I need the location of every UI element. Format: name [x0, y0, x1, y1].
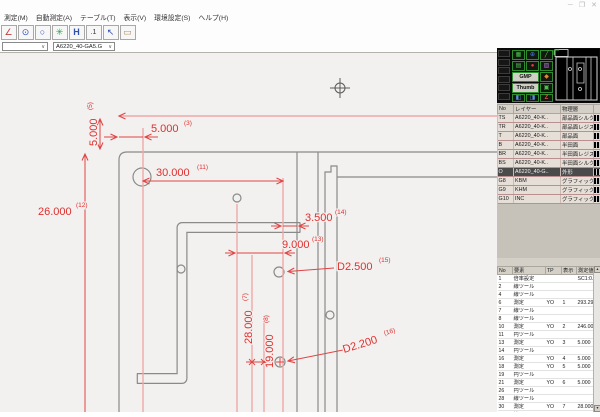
- measurement-row[interactable]: 10 測定 YO 2 246.000: [498, 323, 600, 331]
- menu-item[interactable]: 測定(M): [4, 12, 28, 22]
- svg-text:(16): (16): [383, 327, 396, 337]
- menu-bar: 測定(M)自動測定(A)テーブル(T)表示(V)環境設定(S)ヘルプ(H): [0, 12, 600, 22]
- part-geometry: [119, 152, 497, 412]
- layer-row[interactable]: TR A6220_40-K.. 部品面レジスト: [498, 123, 600, 132]
- measurement-row[interactable]: 8 線ツール: [498, 315, 600, 323]
- measurement-row[interactable]: 26 円ツール: [498, 387, 600, 395]
- measurement-row[interactable]: 11 円ツール: [498, 331, 600, 339]
- svg-text:(7): (7): [242, 293, 249, 301]
- layer-color-swatch[interactable]: [594, 115, 600, 120]
- measurement-row[interactable]: 14 円ツール: [498, 347, 600, 355]
- measurement-row[interactable]: 16 測定 YO 4 5.000: [498, 355, 600, 363]
- dim-5-3: 5.000: [151, 123, 179, 135]
- meas-header-row: No 要素 TP 表示 測定値: [498, 267, 600, 275]
- layer-select[interactable]: ∨: [2, 42, 48, 51]
- measurement-row[interactable]: 30 測定 YO 7 28.000: [498, 403, 600, 411]
- layer-row[interactable]: G10 INC グラフィック: [498, 195, 600, 204]
- dimension-labels: 26.000 (12) 5.000 (3) 30.000 (11) 5.000 …: [38, 102, 398, 368]
- stack-button[interactable]: [498, 76, 510, 83]
- measurement-row[interactable]: 18 測定 YO 5 5.000: [498, 363, 600, 371]
- stack-button[interactable]: [498, 93, 510, 100]
- dim-19: 19.000 (8): [263, 315, 276, 368]
- layer-row[interactable]: B A6220_40-K.. 半田面: [498, 141, 600, 150]
- svg-text:D2.200: D2.200: [341, 334, 378, 356]
- palette-icon[interactable]: ▨: [540, 61, 553, 71]
- dimension-lines: [85, 119, 343, 412]
- stack-button[interactable]: [498, 67, 510, 74]
- gear-icon[interactable]: ✳: [52, 25, 68, 40]
- extension-lines: [119, 116, 497, 412]
- measurement-row[interactable]: 1 倍率設定 SC1:0.75: [498, 275, 600, 283]
- draw-icon[interactable]: ╱: [540, 50, 553, 60]
- grid-icon[interactable]: ▦: [512, 50, 525, 60]
- measurement-table: No 要素 TP 表示 測定値 1 倍率設定 SC1:0.75: [497, 266, 600, 412]
- measurement-row[interactable]: 2 線ツール: [498, 283, 600, 291]
- dim-26: 26.000: [38, 206, 72, 218]
- stack-buttons: [498, 50, 510, 102]
- dim-d25: D2.500: [337, 261, 372, 273]
- svg-text:(14): (14): [335, 209, 347, 216]
- layer-row[interactable]: T A6220_40-K.. 部品面: [498, 132, 600, 141]
- file-select[interactable]: A6220_40-GA5.G ∨: [53, 42, 115, 51]
- circle-measure-icon[interactable]: ○: [35, 25, 51, 40]
- menu-item[interactable]: 環境設定(S): [154, 12, 190, 22]
- gmp-button[interactable]: GMP: [512, 72, 539, 82]
- drawing-canvas[interactable]: 26.000 (12) 5.000 (3) 30.000 (11) 5.000 …: [0, 52, 497, 412]
- svg-text:(13): (13): [312, 236, 324, 243]
- camera-icon[interactable]: ▣: [540, 83, 553, 93]
- svg-text:(8): (8): [263, 315, 270, 323]
- scroll-down-icon[interactable]: ▼: [594, 405, 600, 412]
- number-label-icon[interactable]: .1: [86, 25, 102, 40]
- layer-color-swatch[interactable]: [594, 142, 600, 147]
- report-window-icon[interactable]: ▭: [120, 25, 136, 40]
- select-cursor-icon[interactable]: ↖: [103, 25, 119, 40]
- down-icon[interactable]: ◨: [526, 94, 539, 102]
- drawing-svg: 26.000 (12) 5.000 (3) 30.000 (11) 5.000 …: [0, 52, 497, 412]
- rail-bar: [325, 166, 337, 412]
- layer-row[interactable]: BR A6220_40-K.. 半田面レジスト: [498, 150, 600, 159]
- menu-item[interactable]: 表示(V): [124, 12, 147, 22]
- layer-row[interactable]: G8 KBM グラフィック: [498, 177, 600, 186]
- svg-text:(11): (11): [197, 164, 208, 171]
- chevron-down-icon: ∨: [108, 44, 112, 50]
- horizontal-distance-icon[interactable]: H: [69, 25, 85, 40]
- angle-measure-icon[interactable]: ∠: [1, 25, 17, 40]
- menu-item[interactable]: 自動測定(A): [36, 12, 72, 22]
- control-cluster: ▦ ⊕ ╱ ▤ ● ▨ GMP ◆ Thumb ▣ ◧ ◨ Z: [497, 48, 600, 103]
- menu-item[interactable]: ヘルプ(H): [198, 12, 228, 22]
- svg-text:28.000: 28.000: [243, 310, 255, 344]
- layer-row[interactable]: BS A6220_40-K.. 半田面シルク: [498, 159, 600, 168]
- layer-panel: No レイヤー 物理層 TS A6220_40-K.. 部品面シルク: [497, 104, 600, 258]
- stack-button[interactable]: [498, 50, 510, 57]
- measurement-row[interactable]: 21 測定 YO 6 5.000: [498, 379, 600, 387]
- measurement-row[interactable]: 4 線ツール: [498, 291, 600, 299]
- measurement-row[interactable]: 28 線ツール: [498, 395, 600, 403]
- thumb-button[interactable]: Thumb: [512, 83, 539, 93]
- layer-row[interactable]: G9 KHM グラフィック: [498, 186, 600, 195]
- svg-text:(3): (3): [184, 120, 192, 127]
- up-icon[interactable]: ◧: [512, 94, 525, 102]
- dim-9: 9.000: [282, 239, 310, 251]
- measurement-scrollbar[interactable]: ▲ ▼: [593, 266, 600, 412]
- close-icon[interactable]: ✕: [591, 1, 597, 10]
- dim-28: 28.000 (7): [242, 293, 255, 344]
- dim-3-5: 3.500: [305, 212, 333, 224]
- chevron-down-icon: ∨: [41, 44, 45, 50]
- target-icon[interactable]: ⊕: [526, 50, 539, 60]
- circle-pair-icon[interactable]: ⊙: [18, 25, 34, 40]
- small-hole: [233, 194, 241, 202]
- measurement-row[interactable]: 19 円ツール: [498, 371, 600, 379]
- menu-item[interactable]: テーブル(T): [80, 12, 115, 22]
- layer-row[interactable]: O A6220_40-G.. 外形: [498, 168, 600, 177]
- measurement-row[interactable]: 13 測定 YO 3 5.000: [498, 339, 600, 347]
- layer-color-swatch[interactable]: [594, 160, 600, 165]
- dim-5-5: 5.000 (5): [87, 102, 100, 146]
- svg-text:19.000: 19.000: [264, 334, 276, 368]
- minimize-icon[interactable]: ─: [568, 1, 573, 10]
- layer-color-swatch[interactable]: [594, 151, 600, 156]
- mount-hole: [133, 168, 151, 186]
- right-panel: ▦ ⊕ ╱ ▤ ● ▨ GMP ◆ Thumb ▣ ◧ ◨ Z No: [497, 48, 600, 412]
- scroll-up-icon[interactable]: ▲: [594, 266, 600, 273]
- dim-d22: D2.200 (16): [341, 327, 398, 356]
- svg-text:(12): (12): [76, 202, 88, 209]
- layer-color-swatch[interactable]: [594, 196, 600, 201]
- record-icon[interactable]: ●: [526, 61, 539, 71]
- layer-table: No レイヤー 物理層 TS A6220_40-K.. 部品面シルク: [497, 104, 600, 204]
- part-preview[interactable]: [553, 49, 599, 102]
- layer-color-swatch[interactable]: [594, 124, 600, 129]
- layer-row[interactable]: TS A6220_40-K.. 部品面シルク: [498, 114, 600, 123]
- toolbar: ∠ ⊙ ○ ✳ H .1 ↖ ▭: [0, 22, 600, 42]
- svg-text:(5): (5): [87, 102, 94, 110]
- layer-color-swatch[interactable]: [594, 133, 600, 138]
- svg-text:5.000: 5.000: [88, 118, 100, 146]
- title-bar: ─ ❐ ✕: [0, 0, 600, 12]
- zoom-icon[interactable]: Z: [540, 94, 553, 102]
- svg-text:(15): (15): [379, 257, 391, 264]
- crosshair-icon: [330, 78, 350, 98]
- stack-button[interactable]: [498, 84, 510, 91]
- layer-color-swatch[interactable]: [594, 187, 600, 192]
- restore-icon[interactable]: ❐: [579, 1, 585, 10]
- measurement-row[interactable]: 7 線ツール: [498, 307, 600, 315]
- measurement-panel: No 要素 TP 表示 測定値 1 倍率設定 SC1:0.75: [497, 266, 600, 412]
- layer-header-row: No レイヤー 物理層: [498, 105, 600, 114]
- rail-hole: [326, 311, 334, 319]
- dim-30: 30.000: [156, 167, 190, 179]
- layer-color-swatch[interactable]: [594, 178, 600, 183]
- doc-icon[interactable]: ▤: [512, 61, 525, 71]
- wrench-icon[interactable]: ◆: [540, 72, 553, 82]
- stack-button[interactable]: [498, 59, 510, 66]
- layer-color-swatch[interactable]: [594, 169, 600, 174]
- measurement-row[interactable]: 6 測定 YO 1 293.294: [498, 299, 600, 307]
